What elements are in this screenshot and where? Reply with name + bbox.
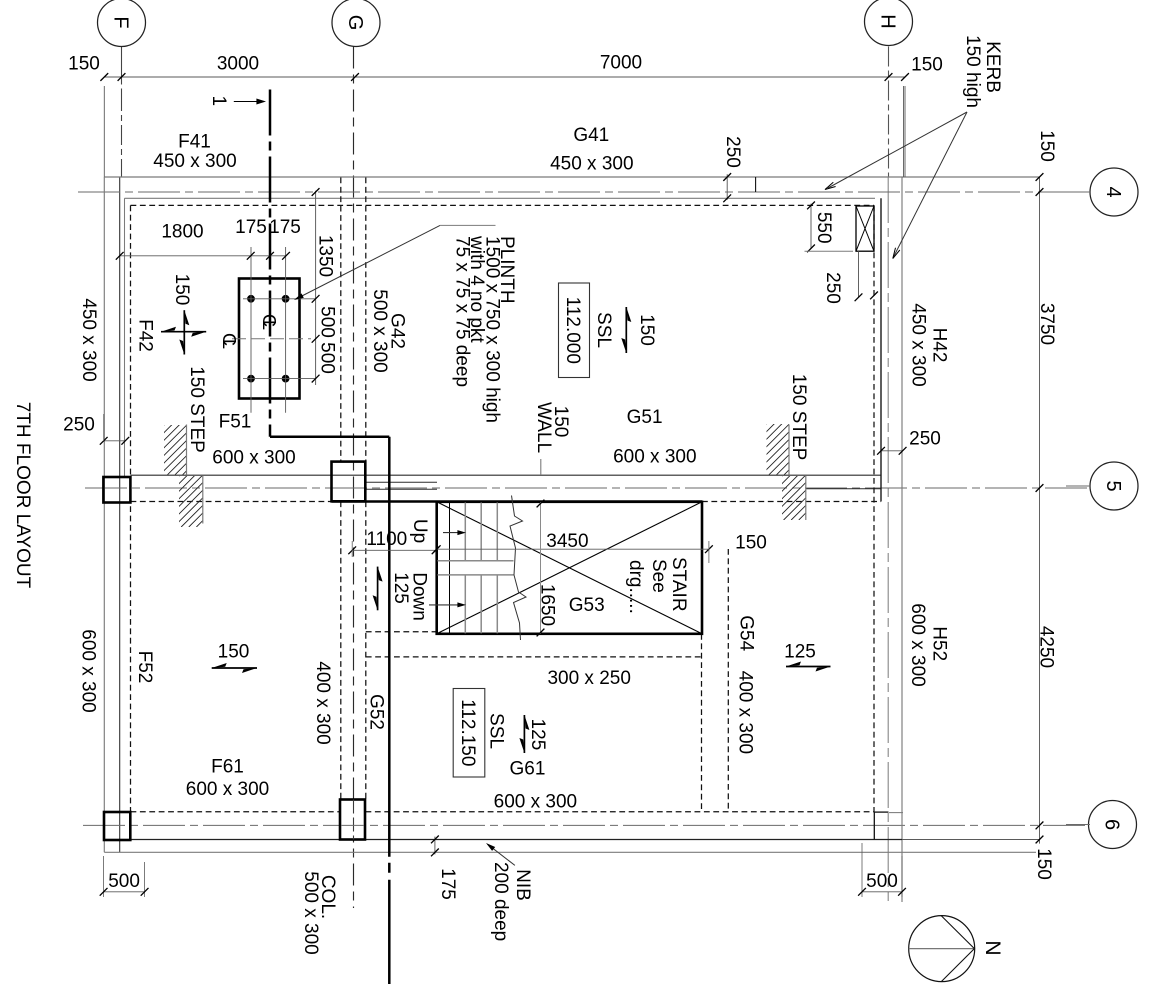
svg-text:1350: 1350 <box>314 235 335 277</box>
svg-text:600 x 300: 600 x 300 <box>186 779 269 800</box>
svg-text:H52: H52 <box>928 626 949 661</box>
svg-text:300 x 250: 300 x 250 <box>547 668 630 689</box>
svg-text:N: N <box>981 940 1004 955</box>
svg-text:125: 125 <box>390 572 411 604</box>
svg-text:G54: G54 <box>735 615 756 651</box>
svg-text:H42: H42 <box>929 328 950 363</box>
svg-text:3750: 3750 <box>1036 303 1057 345</box>
svg-text:175: 175 <box>437 868 458 900</box>
svg-text:400 x 300: 400 x 300 <box>312 661 333 744</box>
svg-text:500 x 300: 500 x 300 <box>369 289 390 372</box>
svg-text:112.000: 112.000 <box>562 297 583 364</box>
svg-text:125: 125 <box>784 642 816 663</box>
svg-text:600 x 300: 600 x 300 <box>78 629 99 712</box>
svg-text:G51: G51 <box>627 407 663 428</box>
svg-text:F: F <box>109 16 131 28</box>
svg-text:SSL: SSL <box>486 713 507 749</box>
svg-text:1800: 1800 <box>161 222 203 243</box>
svg-text:150: 150 <box>171 274 192 306</box>
svg-text:600 x 300: 600 x 300 <box>907 603 928 686</box>
svg-text:STAIR: STAIR <box>668 557 689 612</box>
svg-text:250: 250 <box>909 429 941 450</box>
svg-text:112.150: 112.150 <box>457 699 478 766</box>
svg-text:F42: F42 <box>135 319 156 352</box>
svg-text:600 x 300: 600 x 300 <box>613 446 696 467</box>
svg-text:SSL: SSL <box>593 312 614 348</box>
svg-text:75 x 75 x 75 deep: 75 x 75 x 75 deep <box>452 236 473 387</box>
svg-text:450 x 300: 450 x 300 <box>550 154 633 175</box>
svg-text:150: 150 <box>1033 848 1054 880</box>
svg-text:3000: 3000 <box>217 54 259 75</box>
svg-text:G53: G53 <box>569 595 605 616</box>
svg-text:150 high: 150 high <box>962 35 983 108</box>
svg-text:Up: Up <box>409 519 430 543</box>
svg-text:500: 500 <box>317 306 338 338</box>
svg-text:F61: F61 <box>211 757 244 778</box>
svg-text:7000: 7000 <box>600 53 642 74</box>
svg-text:WALL: WALL <box>533 402 554 453</box>
svg-text:7TH FLOOR LAYOUT: 7TH FLOOR LAYOUT <box>12 402 33 589</box>
svg-text:125: 125 <box>527 719 548 751</box>
svg-text:drg.....: drg..... <box>625 560 646 614</box>
svg-text:G: G <box>344 15 366 31</box>
svg-text:500: 500 <box>317 342 338 374</box>
svg-text:150: 150 <box>636 314 657 346</box>
svg-text:3450: 3450 <box>546 531 588 552</box>
svg-text:600 x 300: 600 x 300 <box>212 448 295 469</box>
svg-text:500: 500 <box>866 871 898 892</box>
svg-text:175: 175 <box>235 217 267 238</box>
svg-text:6: 6 <box>1100 819 1122 830</box>
svg-text:450 x 300: 450 x 300 <box>153 151 236 172</box>
svg-text:150 STEP: 150 STEP <box>788 374 809 461</box>
svg-text:500 x 300: 500 x 300 <box>300 871 321 954</box>
svg-text:G41: G41 <box>573 125 609 146</box>
svg-text:450 x 300: 450 x 300 <box>78 298 99 381</box>
svg-text:G61: G61 <box>510 758 546 779</box>
svg-text:F52: F52 <box>134 651 155 684</box>
svg-text:5: 5 <box>1102 480 1124 491</box>
svg-text:200 deep: 200 deep <box>490 862 511 941</box>
svg-text:600 x 300: 600 x 300 <box>494 791 577 812</box>
svg-text:G52: G52 <box>366 694 387 730</box>
svg-text:H: H <box>876 14 898 28</box>
svg-text:150 STEP: 150 STEP <box>186 366 207 453</box>
svg-text:550: 550 <box>813 212 834 244</box>
svg-text:250: 250 <box>822 272 843 304</box>
svg-text:250: 250 <box>63 415 95 436</box>
svg-text:NIB: NIB <box>512 869 533 901</box>
svg-text:F51: F51 <box>219 412 252 433</box>
svg-text:175: 175 <box>269 217 301 238</box>
svg-text:150: 150 <box>1036 130 1057 162</box>
svg-text:150: 150 <box>68 54 100 75</box>
svg-text:See: See <box>648 559 669 593</box>
svg-text:KERB: KERB <box>982 41 1003 93</box>
svg-text:150: 150 <box>218 642 250 663</box>
svg-text:F41: F41 <box>178 132 211 153</box>
svg-text:500: 500 <box>108 871 140 892</box>
svg-text:150: 150 <box>735 533 767 554</box>
svg-text:1650: 1650 <box>536 584 557 626</box>
svg-text:1: 1 <box>208 96 229 107</box>
svg-text:4250: 4250 <box>1036 626 1057 668</box>
svg-text:150: 150 <box>911 55 943 76</box>
svg-text:400 x 300: 400 x 300 <box>735 671 756 754</box>
svg-text:450 x 300: 450 x 300 <box>908 303 929 386</box>
svg-text:1100: 1100 <box>366 529 407 550</box>
svg-text:250: 250 <box>722 136 743 168</box>
svg-text:4: 4 <box>1102 186 1124 197</box>
